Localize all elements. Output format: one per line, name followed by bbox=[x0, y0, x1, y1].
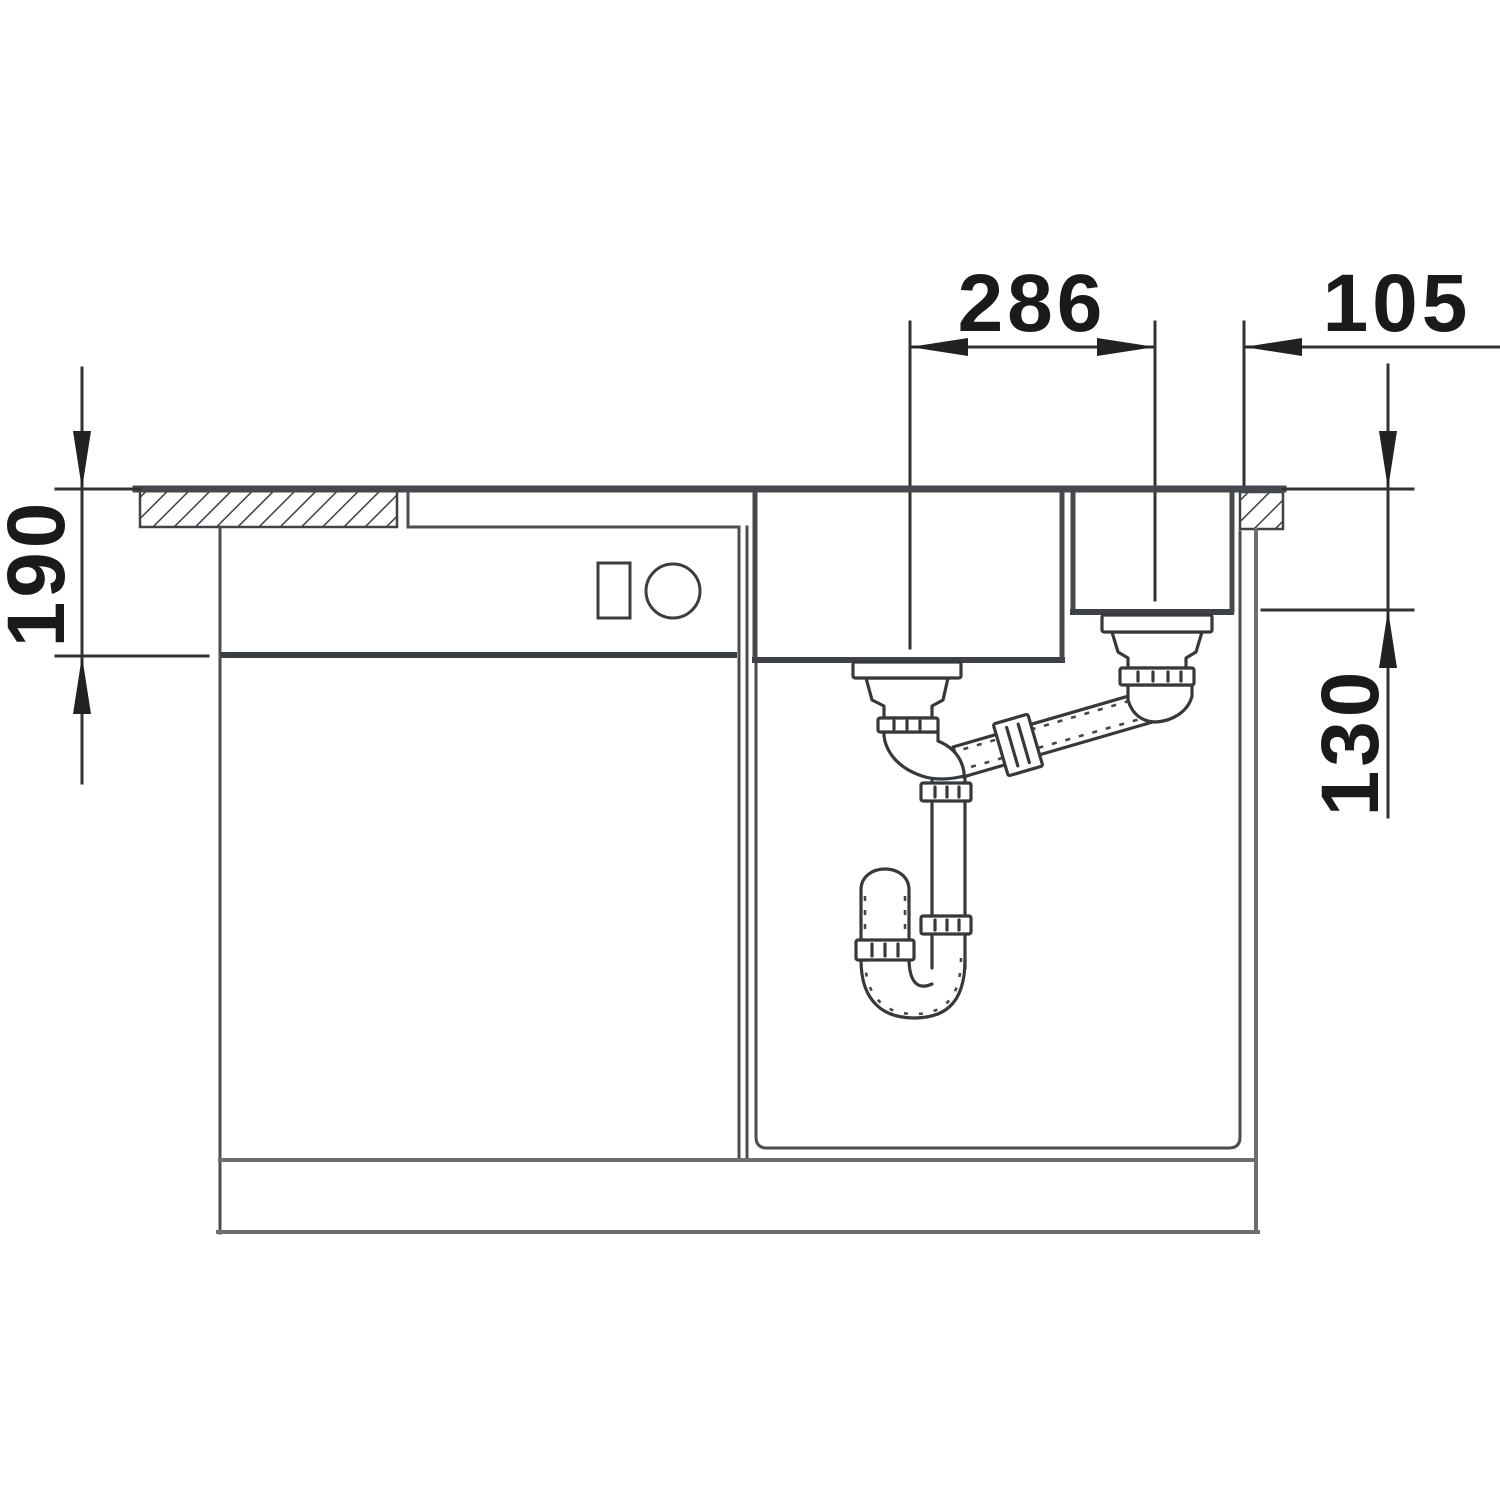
dimension-105: 105 bbox=[1244, 258, 1500, 356]
worktop-right-hatched-slab bbox=[1240, 492, 1283, 529]
dim-label-130: 130 bbox=[1305, 668, 1396, 817]
small-drain-elbow bbox=[1128, 685, 1192, 722]
dimension-190: 190 bbox=[0, 368, 208, 783]
main-strainer-nut bbox=[878, 718, 938, 732]
dimension-286: 286 bbox=[910, 258, 1155, 356]
trap-arm-rounded-top bbox=[861, 869, 909, 890]
arrowhead-105-left bbox=[1244, 338, 1302, 356]
arrowhead-190-bottom bbox=[73, 656, 91, 714]
dishwasher-square-symbol bbox=[598, 563, 630, 618]
tailpipe-upper-nut bbox=[921, 783, 971, 801]
drain-and-siphon bbox=[853, 615, 1212, 1018]
connector-pipe bbox=[953, 691, 1156, 777]
small-strainer-flange bbox=[1102, 615, 1212, 632]
dim-label-286: 286 bbox=[958, 258, 1107, 349]
main-drain-elbow bbox=[884, 732, 964, 779]
main-strainer-flange bbox=[853, 662, 961, 678]
technical-section-canvas: 286 105 190 130 bbox=[0, 0, 1500, 1500]
trap-inner-curve bbox=[909, 890, 932, 986]
extension-lines bbox=[910, 322, 1244, 648]
dishwasher-front bbox=[220, 527, 739, 1233]
small-strainer-cup bbox=[1112, 632, 1202, 668]
dishwasher-circle-symbol bbox=[646, 564, 700, 618]
small-strainer-nut bbox=[1120, 668, 1194, 685]
main-drain-strainer bbox=[853, 662, 961, 732]
tailpipe-lower-nut bbox=[921, 916, 971, 934]
worktop bbox=[136, 489, 1283, 529]
connector-pipe-body bbox=[953, 691, 1156, 777]
worktop-left-hatched-slab bbox=[140, 489, 397, 527]
dimension-130: 130 bbox=[1262, 365, 1413, 817]
arrowhead-130-bottom bbox=[1379, 610, 1397, 668]
main-strainer-cup bbox=[866, 678, 948, 718]
arrowhead-190-top bbox=[73, 431, 91, 489]
trap-arm-nut bbox=[856, 940, 914, 960]
dim-label-105: 105 bbox=[1323, 258, 1472, 349]
arrowhead-130-top bbox=[1379, 431, 1397, 489]
dim-label-190: 190 bbox=[0, 499, 82, 648]
sink-installation-drawing: 286 105 190 130 bbox=[0, 0, 1500, 1500]
tailpipe-fill bbox=[933, 774, 964, 970]
